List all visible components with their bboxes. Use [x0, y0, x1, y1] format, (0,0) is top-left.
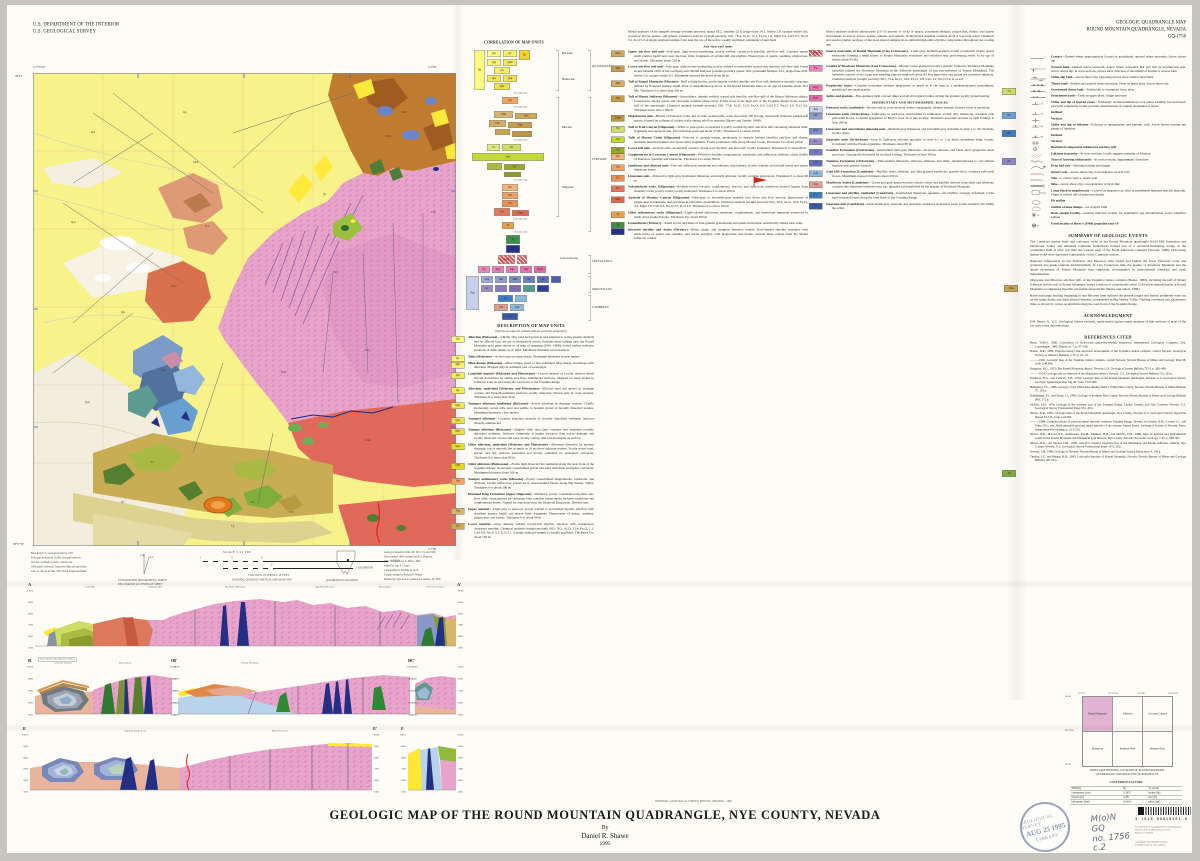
map-unit-entry: TsyYounger sedimentary rocks (Miocene)—P… — [474, 477, 594, 490]
svg-text:K: K — [1038, 214, 1040, 217]
elevation-label: FEET — [394, 734, 406, 737]
declination-caption: DECLINATION AT CENTER OF SHEET — [118, 583, 162, 586]
elevation-label: 6000 — [458, 780, 463, 783]
correlation-unit-box: Qam — [503, 59, 517, 66]
elevation-label: 5000 — [21, 714, 33, 717]
correlation-unit-box: Tcp — [502, 192, 518, 199]
correlation-unit-box: Kgf — [520, 266, 532, 273]
nevada-outline — [335, 550, 357, 576]
ball-symbol-icon — [1030, 65, 1048, 72]
section-letter: D — [408, 658, 411, 663]
reference-entry: Shawe, D.R., and Snyder, D.B., 1988, Ash… — [1035, 442, 1186, 450]
map-unit-chip: Oml — [809, 128, 823, 135]
bar-tick: ½ — [231, 557, 233, 560]
map-blue-unit-patch — [402, 130, 420, 140]
reference-entry: Shawe, D.R., Marvin, R.F., Andriessen, P… — [1035, 433, 1186, 441]
margin-unit-chip: Tg — [1002, 470, 1016, 477]
map-unit-entry: TmoAndesite of Meadow Canyon (Oligocene)… — [634, 196, 808, 209]
map-unit-chip: Kg — [809, 65, 823, 72]
correlation-unit-box — [515, 295, 527, 302]
cross-section-D — [415, 666, 456, 721]
map-unit-chip: Tcb — [611, 154, 625, 161]
section-letter: F — [401, 726, 404, 731]
scale-bar-mile — [263, 561, 388, 562]
correlation-unit-box: Qal — [487, 50, 501, 57]
survey-line: U.S. GEOLOGICAL SURVEY — [33, 29, 96, 34]
base-credit-line: Nevada coordinate system, central zone — [31, 561, 72, 564]
legend-symbol-entry: qQuartz vein—Arrow shows dip; cross indi… — [1030, 170, 1186, 174]
legend-symbol-entry: Trace of layering within units—In cross … — [1030, 158, 1186, 162]
map-unit-entry: QalAlluvium (Holocene)—Chiefly silty san… — [474, 336, 594, 353]
legend-symbol-entry: Strike-slip fault—Arrow shows dip. Oppos… — [1030, 76, 1186, 80]
map-unit-entry: TmlLower ash-flow tuff unit—Pale-gray, l… — [634, 65, 808, 78]
elevation-label: 5000 — [458, 714, 463, 717]
correlation-unit-box: Tg — [506, 235, 520, 244]
correlation-unit-box — [523, 285, 535, 292]
index-map-cell: Belmont West — [1113, 732, 1143, 767]
map-unit-chip: Qm — [451, 362, 465, 369]
legend-symbol-entry: Pit outline — [1030, 199, 1186, 203]
declination-caption: UTM GRID AND 1995 MAGNETIC NORTH — [118, 579, 166, 582]
elevation-label: 7000 — [374, 768, 379, 771]
era-label: TERTIARY — [592, 158, 607, 161]
map-unit-chip: Trw — [611, 137, 625, 144]
map-navy-dike-patch — [433, 167, 439, 171]
map-green-mottle — [367, 514, 379, 522]
elevation-label: FEET — [458, 734, 464, 737]
map-unit-entry: CqQuartzite unit (Cambrian)—Dark bluish-… — [832, 202, 994, 211]
base-credit-line: 1000-meter Universal Transverse Mercator… — [31, 566, 87, 569]
elevation-label: 6000 — [394, 780, 406, 783]
barcode-number: 3 1818 00010481 8 — [1135, 817, 1188, 821]
map-unit-chip: Oz — [809, 149, 823, 156]
era-bracket — [588, 255, 591, 274]
elevation-label: FEET — [21, 666, 33, 669]
section-place-label: Mount Jefferson — [272, 730, 288, 733]
index-map-coordinate: 117°00′ — [1138, 692, 1145, 695]
map-unit-chip: Tdl — [451, 523, 465, 530]
index-map-cell: Round Mountain — [1083, 697, 1113, 732]
section-letter: B — [28, 658, 31, 663]
map-unit-entry: Diamond King Formation (upper Oligocene)… — [474, 492, 594, 505]
column-heading: REFERENCES CITED — [1030, 335, 1186, 340]
reference-entry: Ferguson, H.G., 1921, The Round Mountain… — [1035, 368, 1186, 372]
map-unit-entry: QaoYounger alluvium (Holocene)—Slightly … — [474, 428, 594, 441]
sale-note-line: Denver, CO 80225 — [1135, 832, 1190, 835]
elevation-label: 9000 — [374, 745, 379, 748]
index-map-caption: INDEX MAP SHOWING LOCATION OF ROUND MOUN… — [1062, 769, 1192, 772]
legend-symbol-entry: 10Fossil locality of Berry's (1960) grap… — [1030, 222, 1186, 226]
sol-symbol-icon — [1030, 55, 1048, 62]
cross-section-B — [35, 666, 172, 721]
correlation-unit-box: Tmr — [489, 120, 506, 127]
svg-text:v: v — [1043, 179, 1045, 182]
svg-text:(Tum): (Tum) — [1041, 191, 1047, 194]
elevation-label: 8000 — [458, 757, 463, 760]
index-map-coordinate: 116°52′30″ — [1168, 692, 1178, 695]
map-unit-entry: TgGranodiorite (Tertiary)—Small stocks a… — [634, 222, 808, 226]
index-map-caption: QUADRANGLE AND ADJACENT QUADRANGLES — [1062, 773, 1192, 776]
column-gap — [1030, 228, 1186, 232]
barcode — [1138, 807, 1191, 815]
elevation-label: 8000 — [21, 613, 33, 616]
column-paragraph: Oligocene and Miocene ash-flow tuffs of … — [1030, 279, 1186, 292]
reference-entry: ———1924, Geology and ore deposits of the… — [1035, 372, 1186, 376]
section-place-label: Round Mountain — [241, 662, 258, 665]
map-unit-chip: Om — [809, 113, 823, 120]
column-paragraph: Regional compression in late Paleozoic a… — [1030, 259, 1186, 276]
conversion-cell: kilometers (km) — [1070, 800, 1122, 805]
correlation-unit-box: Qay — [487, 59, 501, 66]
map-unit-entry: TcbConglomerate of Corcoran Canyon (Olig… — [634, 153, 808, 162]
conversion-cell: miles (mi) — [1147, 800, 1182, 805]
author: Daniel R. Shawe — [300, 832, 910, 840]
correlation-unit-box: Tcl — [502, 200, 518, 207]
legend-symbol-entry: KRock sample locality—Asterisk indicates… — [1030, 211, 1186, 219]
map-unit-entry: OzZanzibar Formation (Ordovician)—Interb… — [832, 149, 994, 158]
km-label: 1 KILOMETER — [356, 567, 373, 570]
correlation-unit-box: Trl — [504, 164, 525, 170]
map-unit-chip: Qao — [451, 428, 465, 435]
round-mountain-pit-inner — [211, 501, 225, 509]
legend-symbol-entry: Overturned thrust fault—Teeth point to o… — [1030, 88, 1186, 92]
section-place-label: Toquima Range front — [124, 730, 145, 733]
section-letter: C′ — [411, 658, 416, 663]
reference-entry: ———1988, Complex history of precious met… — [1035, 421, 1186, 433]
elevation-label: 9000 — [458, 745, 463, 748]
elevation-label: 5000 — [21, 647, 33, 650]
map-unit-entry: KgpPorphyritic facies—Contains potassium… — [832, 84, 994, 93]
map-unit-chip: Kqm — [809, 50, 823, 57]
elevation-label: 5000 — [394, 791, 406, 794]
correlation-unit-box: Qoa — [494, 83, 510, 90]
elevation-label: 9000 — [458, 601, 463, 604]
map-unit-entry: TiIntrusive rhyolite and dacite (Tertiar… — [634, 228, 808, 241]
correlation-unit-box: Cq — [502, 313, 518, 320]
geology-credit-line: field checked 1994. Assisted by R.A. Pet… — [384, 556, 433, 559]
elevation-label: 6000 — [16, 780, 28, 783]
elevation-label: 8000 — [21, 678, 33, 681]
contour-interval: CONTOUR INTERVAL 40 FEET — [248, 574, 290, 577]
column-heading: ACKNOWLEDGMENT — [1030, 313, 1186, 318]
correlation-unit-box — [517, 255, 527, 264]
fol-symbol-icon: 60 — [1030, 123, 1048, 130]
elevation-label: 5000 — [374, 791, 379, 794]
corner-coordinate: 117°00′ — [428, 66, 437, 69]
elevation-label: 7000 — [21, 690, 33, 693]
correlation-unit-box — [512, 131, 532, 137]
elevation-label: 8000 — [458, 613, 463, 616]
correlation-unit-box: Tt — [487, 144, 500, 151]
column-subheading: SEDIMENTARY AND METAMORPHIC ROCKS — [826, 101, 994, 105]
map-blue-unit-patch — [425, 97, 437, 105]
map-unit-chip: Cq — [809, 203, 823, 210]
column-note: [Queries on map unit symbols indicate un… — [468, 330, 594, 333]
era-label: ORDOVICIAN — [592, 288, 612, 291]
reference-entry: Shawe, D.R., 1981, Geologic map of the R… — [1035, 412, 1186, 420]
geologic-map — [33, 73, 456, 546]
column-heading: DESCRIPTION OF MAP UNITS — [468, 323, 594, 328]
quadrangle-marker — [347, 559, 349, 561]
era-bracket — [588, 97, 591, 232]
column-paragraph: Modal analyses indicate phenocrysts (15–… — [826, 30, 994, 47]
era-label: Miocene — [562, 126, 572, 129]
map-unit-chip: Cz — [809, 192, 823, 199]
unconformity-label: Unconformity — [486, 231, 556, 234]
map-unit-entry: OmLimestone units (Ordovician)—Light-gra… — [832, 112, 994, 125]
era-label: Late Cretaceous — [560, 257, 578, 260]
map-unit-chip: Tmu — [611, 51, 625, 58]
handwritten-catalog-note: M(o)NGQno. 1756c.2 — [1090, 812, 1131, 854]
reference-entry: Stewart, J.H., 1980, Geology of Nevada: … — [1035, 450, 1186, 454]
legend-symbol-entry: Vertical — [1030, 117, 1186, 121]
column-paragraph: Modal analyses of six samples average (v… — [628, 30, 808, 43]
correlation-unit-box: Oml — [509, 276, 521, 283]
elevation-label: 6000 — [458, 702, 463, 705]
map-unit-chip: Qay — [451, 403, 465, 410]
column-paragraph: Basin-and-range faulting beginning in la… — [1030, 294, 1186, 307]
map-unit-entry: TdlLower member—Gray, densely welded cry… — [474, 523, 594, 540]
legend-symbol-entry: Vertical — [1030, 139, 1186, 143]
legend-symbol-entry: 35Inclined — [1030, 111, 1186, 115]
era-bracket — [588, 295, 591, 321]
map-unit-entry: TsOlder sedimentary rocks (Oligocene)—Li… — [634, 211, 808, 220]
map-unit-entry: TcvVolcaniclastic rocks (Oligocene)—Redd… — [634, 185, 808, 194]
map-number: GQ-1756 — [1168, 34, 1186, 39]
map-unit-chip: Tdu — [451, 508, 465, 515]
map-unit-entry: QTaOlder alluvium (Pleistocene)—Forms hi… — [474, 462, 594, 475]
conversion-title: CONVERSION FACTORS — [1070, 781, 1182, 784]
correlation-unit-box — [487, 163, 502, 170]
correlation-unit-box: Kgm — [534, 266, 546, 273]
map-unit-entry: QmMine dumps (Holocene)—Mine dumps, more… — [474, 361, 594, 370]
era-bracket — [588, 276, 591, 293]
map-unit-entry: TmrTuff of Round Mountain (Miocene)—Buff… — [634, 80, 808, 93]
geology-credit-line: Manuscript approved for publication Janu… — [384, 578, 441, 581]
elevation-label: 6000 — [374, 780, 379, 783]
correlation-unit-box: Osp — [481, 276, 493, 283]
elevation-label: 9000 — [21, 601, 33, 604]
section-place-label: Jefferson Canyon — [54, 662, 72, 665]
map-unit-entry: TmjTuff of Mount Jefferson (Miocene)—Int… — [634, 95, 808, 112]
map-unit-entry: CmMayflower Schist (Cambrian)—Green and … — [832, 181, 994, 190]
elevation-label: 7000 — [458, 624, 463, 627]
cross-section-A — [35, 590, 456, 654]
corner-coordinate: 38°45′ — [15, 75, 22, 78]
elevation-label: FEET — [458, 666, 464, 669]
correlation-unit-box: Qau — [503, 75, 517, 82]
reference-entry: Berry, W.B.N., 1960, Correlation of Ordo… — [1035, 342, 1186, 350]
map-unit-chip: Tml — [611, 66, 625, 73]
column-paragraph: The Cambrian marine shale and carbonate … — [1030, 240, 1186, 257]
elevation-label: 5000 — [458, 647, 463, 650]
title-block: GEOLOGIC MAP OF THE ROUND MOUNTAIN QUADR… — [300, 808, 910, 847]
conversion-table: MultiplyByTo obtaincentimeters (cm)0.393… — [1070, 786, 1182, 805]
sale-note: For sale by U.S. Geological Survey Infor… — [1135, 826, 1190, 835]
map-unit-chip: Qoa — [451, 443, 465, 450]
base-credit-line: Base from U.S. Geological Survey, 1971 — [31, 552, 73, 555]
map-unit-entry: OqQuartzite units (Ordovician)—Gray to l… — [832, 138, 994, 147]
correlation-unit-box — [495, 285, 507, 292]
elevation-label: 9000 — [16, 745, 28, 748]
correlation-unit-box: Tmo — [512, 210, 529, 216]
scale-label: SCALE 1:24 000 — [223, 551, 251, 554]
elevation-label: 5000 — [458, 791, 463, 794]
elevation-label: 8000 — [394, 757, 406, 760]
map-unit-entry: OtToquima Formation (Ordovician)—Thin-be… — [832, 159, 994, 168]
era-label: Oligocene — [562, 186, 574, 189]
map-unit-entry: QayYoungest alluvium, undivided (Holocen… — [474, 402, 594, 415]
map-unit-entry: QauYoungest alluvium—Contains abundant m… — [474, 417, 594, 426]
map-unit-entry: CzLimestone and phyllite, undivided (Cam… — [832, 192, 994, 201]
svg-text:10: 10 — [1037, 224, 1040, 227]
geology-credit-line: Graphic design by Richard P. Walker — [384, 574, 422, 577]
correlation-unit-box: Oz — [523, 276, 535, 283]
svg-text:35: 35 — [1041, 113, 1044, 116]
elevation-label: 6000 — [21, 702, 33, 705]
index-map-cell: Belmont East — [1143, 732, 1173, 767]
byline: By — [300, 825, 910, 831]
era-label: CRETACEOUS — [592, 260, 612, 263]
reference-entry: Ferguson, H.G., and Cathcart, S.H., 1954… — [1035, 377, 1186, 385]
reference-entry: Kleinhampl, F.J., and Ziony, J.I., 1985,… — [1035, 395, 1186, 403]
map-unit-entry: KgaAplite and alaskite—Fine-grained, lig… — [832, 95, 994, 99]
bar-tick: 1 — [200, 557, 201, 560]
elevation-label: 8000 — [458, 678, 463, 681]
base-credit-line: zone 11, shown in blue. 1927 North Ameri… — [31, 570, 87, 573]
map-unit-chip: Qa — [451, 388, 465, 395]
map-unit-entry: TclLimestone unit—Pale-red to light-gray… — [634, 174, 808, 183]
elevation-label: 8000 — [374, 757, 379, 760]
map-unit-chip: Kga — [809, 95, 823, 102]
bar-tick: 0 — [261, 557, 262, 560]
map-unit-chip: Qau — [451, 418, 465, 425]
section-letter: E — [23, 726, 26, 731]
column-heading: SUMMARY OF GEOLOGIC EVENTS — [1030, 233, 1186, 238]
correlation-unit-box: Tsy — [502, 97, 518, 104]
correlation-unit-box — [537, 285, 549, 292]
column-gap — [1030, 331, 1186, 334]
column-paragraph: F.M. Byers, Jr., U.S. Geological Survey … — [1030, 320, 1186, 329]
section-letter: C — [171, 658, 174, 663]
index-map: Round MountainJeffersonCorcoran CanyonMa… — [1082, 696, 1173, 767]
imprint-line: INTERIOR—GEOLOGICAL SURVEY, RESTON, VIRG… — [655, 800, 732, 803]
unconformity-label: Unconformity — [486, 106, 556, 109]
era-label: Pleistocene — [562, 78, 575, 81]
correlation-unit-box: Qao — [487, 75, 501, 82]
map-unit-entry: CghGold Hill Formation (Cambrian)—Phylli… — [832, 170, 994, 179]
map-white-patch — [126, 263, 150, 273]
ast-symbol-icon: K — [1030, 211, 1048, 218]
map-unit-entry: TrwTuffs of Moores Creek (Oligocene)—Pal… — [634, 136, 808, 145]
geology-credit-line: 1961–63, and Scott A. Minor, 1981 — [384, 560, 421, 563]
era-label: QUATERNARY — [592, 65, 613, 68]
unconformity-label: Unconformity — [486, 218, 556, 221]
reference-entry: Humphrey, F.L., 1960, Geology of the Whi… — [1035, 386, 1186, 394]
margin-unit-chip: Trt — [1002, 88, 1016, 95]
map-unit-chip: Qal — [451, 336, 465, 343]
map-unit-entry: QaAlluvium, undivided (Holocene and Plei… — [474, 387, 594, 400]
correlation-of-map-units: CORRELATION OF MAP UNITS QaQalQcQtQayQam… — [464, 40, 632, 324]
correlation-unit-box: Tmb — [494, 111, 513, 118]
map-unit-chip: Ts — [611, 211, 625, 218]
dip-symbol-icon: 35 — [1030, 100, 1048, 107]
geology-credit-line: Geology mapped in 1961–68, 1971–74, and … — [384, 551, 436, 554]
correlation-unit-box: Qc — [503, 50, 517, 57]
correlation-unit-box: Ti — [506, 245, 520, 253]
map-unit-chip: Tcp — [611, 164, 625, 171]
foss-symbol-icon: 10 — [1030, 222, 1048, 229]
map-unit-chip: Ot — [809, 160, 823, 167]
map-green-mottle — [318, 422, 328, 428]
text-column-4: Contact—Dashed where approximately locat… — [1030, 55, 1186, 464]
map-unit-chip: Tmo — [611, 196, 625, 203]
geology-credit-line: Edited by Jane S. Ciener — [384, 565, 410, 568]
conversion-cell: 0.6214 — [1122, 800, 1147, 805]
correlation-unit-box — [495, 129, 510, 135]
cross-section-E — [30, 734, 372, 798]
section-letter: B′ — [173, 658, 177, 663]
index-map-coordinate: 38°30′ — [1065, 763, 1071, 766]
correlation-unit-box: Pzu — [466, 276, 479, 310]
legend-symbol-entry: Outline of mine dumps—As of April 1994 — [1030, 205, 1186, 209]
era-bracket — [556, 97, 559, 217]
era-label: CAMBRIAN — [592, 306, 609, 309]
index-map-cell: Corcoran Canyon — [1143, 697, 1173, 732]
unconformity-label: Unconformity — [486, 139, 556, 142]
cross-section-C — [178, 666, 410, 721]
elevation-label: 7000 — [16, 768, 28, 771]
legend-symbol-entry: Detachment fault—Teeth on upper plate. O… — [1030, 94, 1186, 98]
correlation-unit-box: Kga — [506, 266, 518, 273]
map-unit-chip: Cm — [809, 181, 823, 188]
reference-entry: Boden, D.R., 1986, Eruptive history and … — [1035, 350, 1186, 358]
map-blue-unit-patch — [377, 106, 393, 116]
svg-text:q: q — [1043, 173, 1045, 176]
legend-symbol-entry: 60Strike and dip of foliation—Foliation … — [1030, 123, 1186, 131]
text-column-3: Modal analyses indicate phenocrysts (15–… — [826, 30, 994, 213]
legend-symbol-entry: 35Strike and dip of layered rocks—Schist… — [1030, 100, 1186, 108]
map-unit-chip: Tmr — [611, 81, 625, 88]
text-column-1: DESCRIPTION OF MAP UNITS[Queries on map … — [468, 322, 594, 542]
correlation-unit-box — [504, 172, 521, 177]
correlation-unit-box: Trt — [502, 144, 521, 151]
sale-note: A pamphlet describing this map isavailab… — [1135, 841, 1190, 847]
correlation-unit-box: Cm — [494, 304, 508, 311]
map-unit-chip: Tmj — [611, 96, 625, 103]
svg-text:35: 35 — [1041, 102, 1044, 105]
map-unit-chip: Oq — [809, 139, 823, 146]
map-unit-entry: OmlLimestone and subordinate dolomite un… — [832, 127, 994, 136]
index-map-coordinate: 117°07′30″ — [1108, 692, 1118, 695]
correlation-unit-box: Qt — [519, 50, 530, 60]
declination-diagram: GN MN — [134, 552, 154, 577]
legend-symbol-entry: vVein—v, calcite vein; q, quartz vein — [1030, 176, 1186, 180]
map-unit-entry: TcpSandstone and siltstone unit—Pale-red… — [634, 164, 808, 173]
map-unit-entry: QcTalus (Holocene)—Active talus on steep… — [474, 355, 594, 359]
section-place-label: Dry Canyon — [119, 662, 131, 665]
unconformity-label: Unconformity — [486, 179, 556, 182]
corner-coordinate: 117°07′30″ — [33, 66, 46, 69]
index-map-cell: Manhattan — [1083, 732, 1113, 767]
map-green-mottle — [396, 525, 406, 531]
section-note: Some Quaternary deposits omitted — [38, 657, 77, 662]
map-unit-chip: Cgh — [809, 171, 823, 178]
era-bracket — [588, 50, 591, 91]
legend-symbol-entry: (Tum)Large block in megabreccia—Colored … — [1030, 189, 1186, 197]
era-label: Holocene — [562, 52, 573, 55]
map-unit-chip: Qls — [451, 372, 465, 379]
